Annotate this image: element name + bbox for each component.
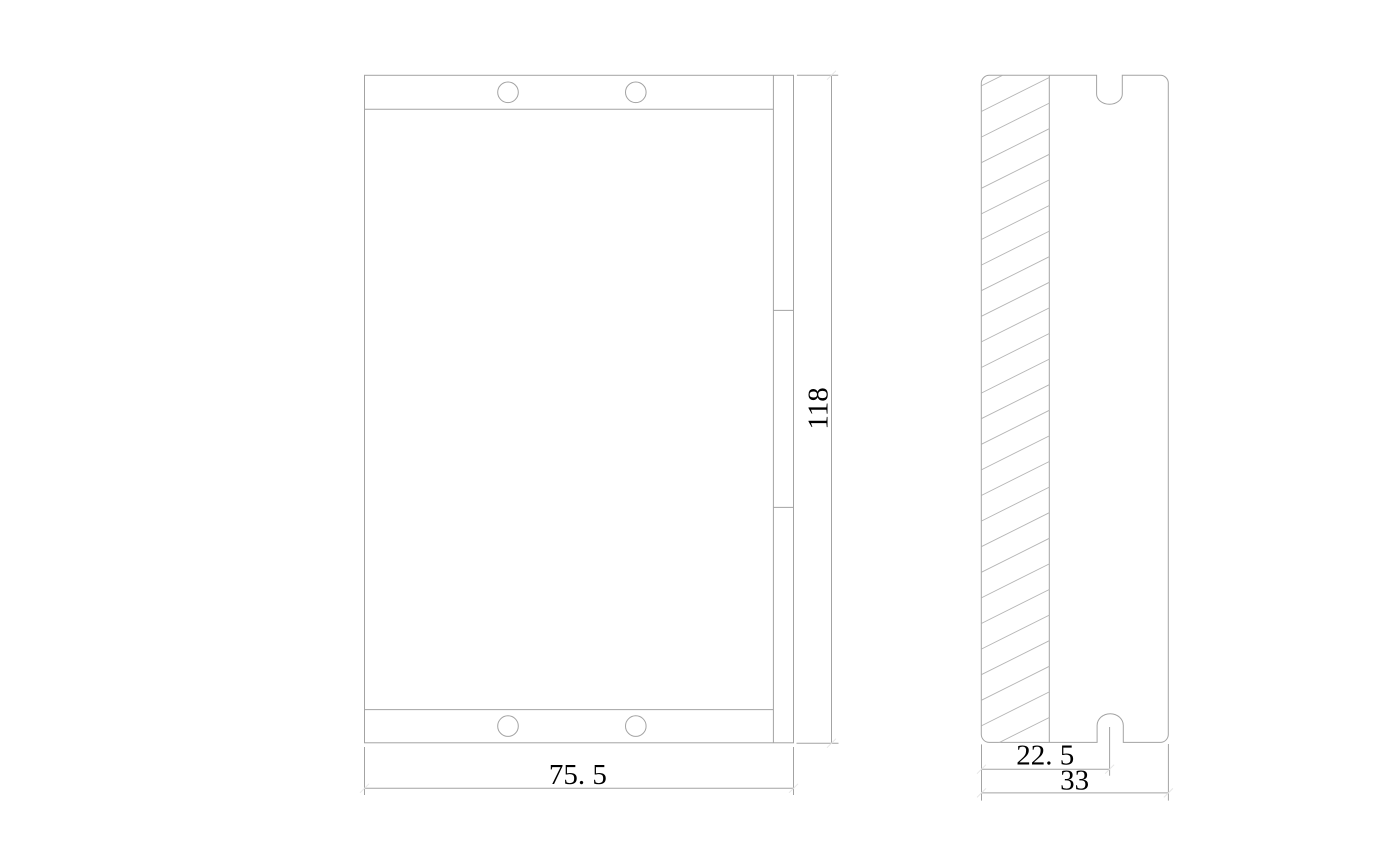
svg-text:75. 5: 75. 5 [549,759,607,791]
svg-text:33: 33 [1060,764,1089,796]
svg-text:118: 118 [803,387,835,429]
